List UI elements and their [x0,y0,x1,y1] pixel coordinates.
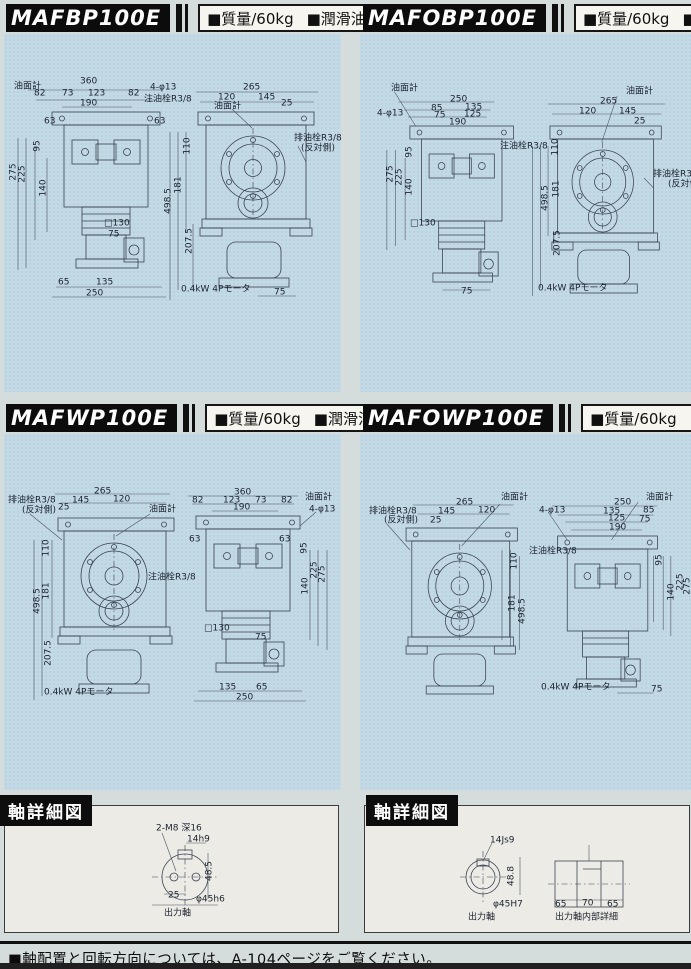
panel-mafbp100e: MAFBP100E ■質量/60kg ■潤滑油量/2.5 [0,0,345,400]
panel-mafobp100e: MAFOBP100E ■質量/60kg ■潤滑油量/2.5 [360,0,691,400]
shaft-detail-drawing [360,795,691,940]
footer-rule [0,941,691,944]
page-bottom-edge [0,963,691,969]
shaft-detail-drawing [0,795,345,940]
shaft-detail-section-left: 軸詳細図 2-M8 深1614h948.525φ45h6出力軸 [0,795,345,940]
technical-drawing [360,400,691,792]
technical-drawing [360,0,691,400]
panel-mafowp100e: MAFOWP100E ■質量/60kg ■潤滑油量/4.0 [360,400,691,792]
technical-drawing [0,400,345,792]
panel-mafwp100e: MAFWP100E ■質量/60kg ■潤滑油量/4.0 [0,400,345,792]
shaft-detail-section-right: 軸詳細図 14Js948.8φ45H7出力軸657065出力軸内部詳細 [360,795,691,940]
technical-drawing [0,0,345,400]
catalog-page: MAFBP100E ■質量/60kg ■潤滑油量/2.5 [0,0,691,969]
